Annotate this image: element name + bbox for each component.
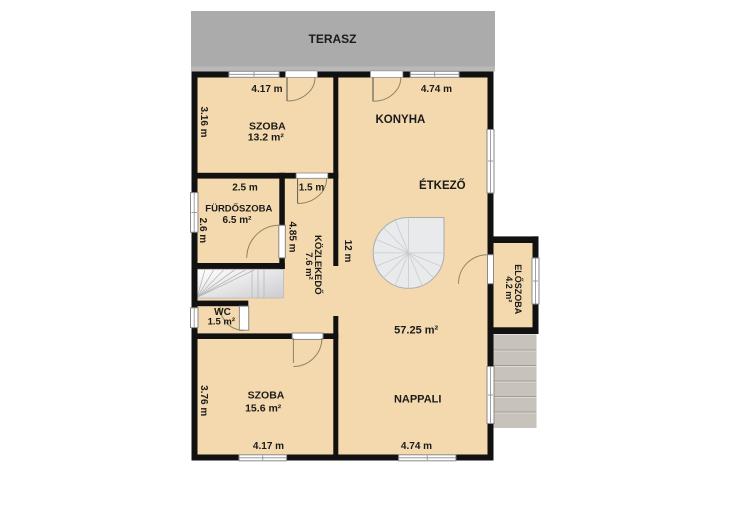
svg-text:7.6 m²: 7.6 m² [303, 252, 314, 279]
svg-text:15.6 m²: 15.6 m² [245, 403, 282, 415]
svg-text:4.2 m²: 4.2 m² [504, 276, 514, 302]
svg-text:3.76 m: 3.76 m [198, 385, 209, 416]
svg-text:KONYHA: KONYHA [375, 114, 425, 126]
svg-text:4.74 m: 4.74 m [421, 84, 452, 95]
svg-text:2.6 m: 2.6 m [197, 218, 208, 244]
svg-text:57.25 m²: 57.25 m² [394, 325, 438, 337]
svg-text:4.17 m: 4.17 m [253, 441, 284, 452]
svg-text:ÉTKEZŐ: ÉTKEZŐ [419, 179, 466, 192]
svg-text:6.5 m²: 6.5 m² [223, 215, 253, 226]
svg-text:4.74 m: 4.74 m [401, 441, 432, 452]
svg-text:TERASZ: TERASZ [309, 32, 357, 46]
svg-text:1.5 m: 1.5 m [299, 183, 325, 194]
svg-text:13.2 m²: 13.2 m² [248, 132, 285, 144]
svg-text:FÜRDŐSZOBA: FÜRDŐSZOBA [205, 203, 272, 215]
svg-text:3.16 m: 3.16 m [198, 106, 209, 137]
svg-text:1.5 m²: 1.5 m² [208, 317, 235, 328]
svg-text:4.85 m: 4.85 m [287, 221, 298, 252]
svg-text:SZOBA: SZOBA [248, 390, 285, 402]
svg-text:NAPPALI: NAPPALI [394, 394, 441, 406]
svg-text:2.5 m: 2.5 m [232, 182, 258, 193]
svg-text:4.17 m: 4.17 m [251, 84, 282, 95]
svg-text:12 m: 12 m [342, 240, 353, 263]
